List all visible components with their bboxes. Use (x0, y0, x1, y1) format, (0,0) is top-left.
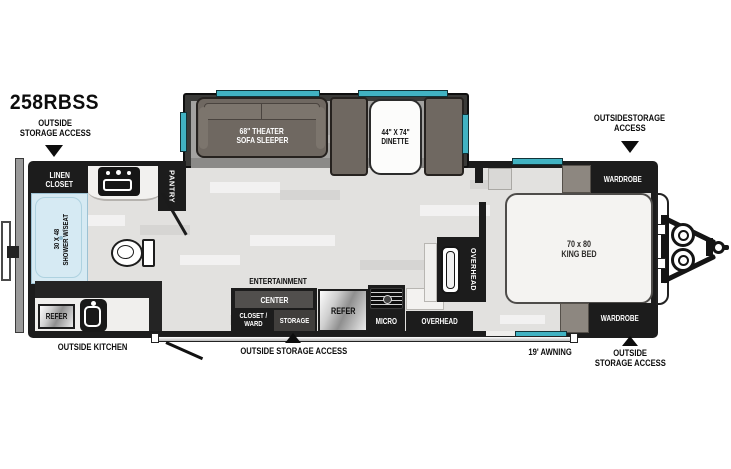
awning-bracket (570, 333, 578, 343)
callout-storage-bottom-center: OUTSIDE STORAGE ACCESS (224, 347, 364, 357)
faucet-handle (127, 171, 131, 175)
window-slide-side-right (462, 114, 469, 154)
toilet-tank (142, 239, 155, 267)
hitch-tip (723, 245, 729, 250)
shower-label: 30 X 48 SHOWER W/SEAT (47, 196, 74, 283)
model-number: 258RBSS (6, 91, 103, 115)
burner-icon (383, 295, 392, 304)
sink-basin (446, 251, 455, 289)
range-cabinet: MICRO (368, 285, 405, 332)
callout-outside-kitchen: OUTSIDE KITCHEN (43, 343, 143, 353)
hitch-jack-pad (657, 224, 666, 235)
tank-valve (678, 230, 689, 241)
outside-kitchen-sink (80, 299, 107, 332)
overhead-cabinet-vertical: OVERHEAD (462, 239, 483, 300)
nightstand (562, 165, 591, 193)
callout-line: STORAGE ACCESS (573, 359, 687, 369)
arrow-up-icon (285, 333, 301, 343)
shower: 30 X 48 SHOWER W/SEAT (31, 193, 88, 284)
floor-plank (280, 190, 340, 200)
refrigerator: REFER (318, 289, 368, 332)
awning-bracket (151, 333, 159, 343)
hitch-jack-pad (657, 258, 666, 269)
arrow-down-icon (45, 145, 63, 157)
model-number-text: 258RBSS (10, 91, 99, 115)
overhead-cabinet: OVERHEAD (406, 311, 473, 331)
sink-basin (84, 306, 101, 327)
faucet-handle (106, 171, 110, 175)
awning-bar (155, 336, 577, 342)
window-slide-left (216, 90, 320, 97)
window-bedroom (512, 158, 563, 165)
floorplan-258rbss: 258RBSS OUTSIDE STORAGE ACCESS OUTSIDEST… (0, 0, 731, 469)
bath-kitchen-divider (35, 281, 157, 298)
callout-line: STORAGE ACCESS (3, 129, 107, 139)
sofa-label: 68" THEATER SOFA SLEEPER (198, 117, 326, 155)
dinette-table: 44" X 74" DINETTE (369, 99, 422, 175)
entertainment-center: CENTER CLOSET / WARD STORAGE (231, 288, 317, 333)
floor-plank (180, 255, 240, 265)
outside-kitchen-refer: REFER (38, 304, 75, 329)
spare-tire-bracket (7, 246, 19, 258)
king-bed: 70 x 80 KING BED (505, 193, 653, 304)
bedroom-wall-stub (479, 202, 486, 238)
bedroom-wall-stub (475, 164, 483, 183)
microwave-label: MICRO (368, 313, 405, 330)
theater-sofa: 68" THEATER SOFA SLEEPER (196, 97, 328, 158)
floor-plank (250, 235, 335, 246)
wardrobe-top: WARDROBE (591, 165, 654, 193)
toilet-bowl (111, 239, 143, 267)
floor-plank (210, 182, 280, 193)
wardrobe-bottom: WARDROBE (589, 303, 651, 333)
linen-closet: LINEN CLOSET (31, 164, 88, 195)
arrow-up-icon (622, 336, 638, 346)
faucet-dot (116, 170, 121, 175)
toilet-seat (117, 245, 134, 259)
stove-icon (370, 288, 403, 309)
callout-storage-top-right: OUTSIDESTORAGE ACCESS (573, 114, 687, 134)
faucet-dot (91, 301, 96, 306)
bath-vanity (88, 166, 162, 201)
entertainment-label: ENTERTAINMENT (228, 276, 328, 287)
propane-tank (671, 223, 695, 247)
storage-cabinet: STORAGE (274, 310, 315, 331)
kitchen-sink (441, 246, 460, 294)
dinette-bench (330, 97, 368, 176)
tank-valve (678, 255, 689, 266)
arrow-down-icon (621, 141, 639, 153)
nightstand (560, 303, 589, 333)
pantry: PANTRY (158, 161, 186, 211)
floor-plank (500, 315, 545, 324)
awning-arm (165, 341, 203, 360)
window-slide-right (358, 90, 448, 97)
floor-plank (360, 260, 430, 270)
callout-storage-bottom-right: OUTSIDE STORAGE ACCESS (573, 349, 687, 369)
window-slide-side-left (180, 112, 187, 152)
vanity-sink-icon (98, 167, 140, 196)
bedroom-cabinet (488, 168, 512, 190)
entertainment-center-shelf: CENTER (235, 291, 313, 308)
sink-basin (103, 179, 132, 191)
propane-tank (671, 248, 695, 272)
callout-line: ACCESS (573, 124, 687, 134)
dinette-bench (424, 97, 464, 176)
closet-ward: CLOSET / WARD (232, 308, 274, 332)
callout-storage-top-left: OUTSIDE STORAGE ACCESS (3, 119, 107, 139)
outside-kitchen-wall (149, 281, 162, 331)
kitchen-counter-side (424, 243, 437, 302)
tall-kitchen-cabinet: OVERHEAD (437, 237, 486, 302)
